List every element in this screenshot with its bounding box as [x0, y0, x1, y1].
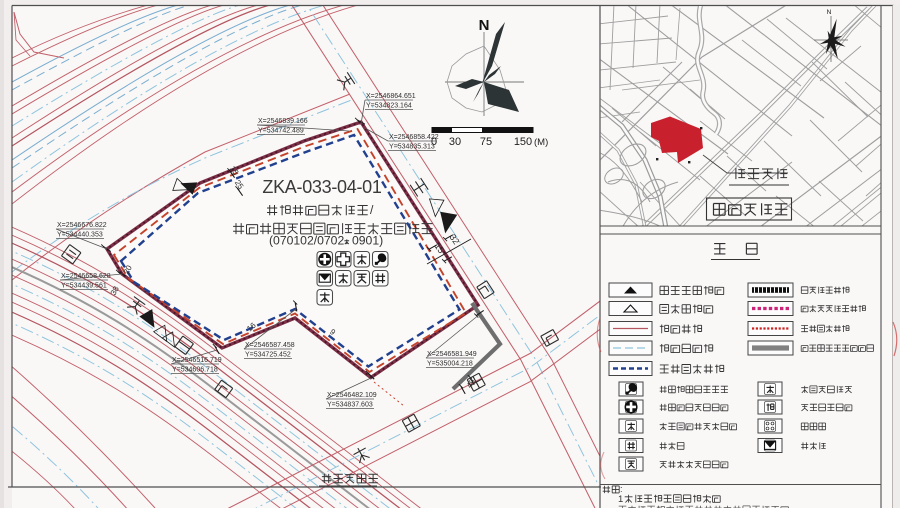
svg-text:;: ;: [709, 494, 712, 504]
svg-text:Y=535004.218: Y=535004.218: [427, 361, 473, 368]
svg-text:Y=534837.603: Y=534837.603: [327, 402, 373, 409]
svg-text:(M): (M): [534, 137, 548, 148]
svg-text:X=2546587.458: X=2546587.458: [245, 342, 295, 349]
svg-text:Y=534606.718: Y=534606.718: [172, 367, 218, 374]
svg-text:1: 1: [618, 494, 623, 505]
svg-text:Y=534823.164: Y=534823.164: [366, 103, 412, 110]
svg-text:Y=534742.489: Y=534742.489: [258, 128, 304, 135]
svg-text:ZKA-033-04-01: ZKA-033-04-01: [262, 177, 381, 197]
svg-text:75: 75: [480, 136, 492, 148]
svg-text:0: 0: [431, 136, 437, 148]
svg-text:(070102/0702: (070102/0702: [269, 234, 344, 248]
svg-text:0901): 0901): [352, 234, 383, 248]
svg-text:N: N: [827, 9, 832, 16]
svg-text:X=2546839.166: X=2546839.166: [258, 118, 308, 125]
svg-text:150: 150: [514, 136, 532, 148]
svg-text:X=2546482.109: X=2546482.109: [327, 392, 377, 399]
svg-text:30: 30: [449, 136, 461, 148]
svg-text:Y=534835.313: Y=534835.313: [389, 144, 435, 151]
svg-text:X=2546864.651: X=2546864.651: [366, 93, 416, 100]
svg-text:X=2546516.719: X=2546516.719: [172, 357, 222, 364]
svg-text:Y=534725.452: Y=534725.452: [245, 352, 291, 359]
svg-text::: :: [620, 484, 623, 494]
svg-text:X=2546581.949: X=2546581.949: [427, 351, 477, 358]
svg-text:Y=534439.561: Y=534439.561: [61, 283, 107, 290]
svg-text:Y=534440.353: Y=534440.353: [57, 232, 103, 239]
svg-text:X=2546676.822: X=2546676.822: [57, 222, 107, 229]
svg-text:N: N: [479, 17, 490, 34]
